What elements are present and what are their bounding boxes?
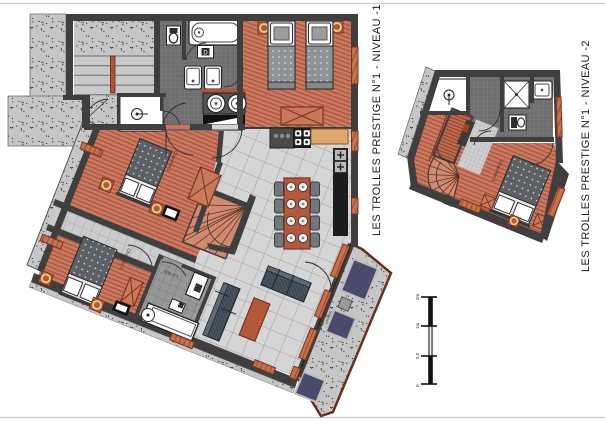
svg-text:D: D (203, 51, 208, 57)
svg-text:2m: 2m (415, 293, 420, 300)
svg-text:1m: 1m (415, 322, 420, 329)
svg-text:LES TROLLES PRESTIGE N°1 - NIV: LES TROLLES PRESTIGE N°1 - NIVEAU -1 (371, 4, 383, 236)
svg-text:LES TROLLES PRESTIGE N°1 - NIV: LES TROLLES PRESTIGE N°1 - NIVEAU -2 (580, 40, 592, 272)
svg-text:0,5: 0,5 (415, 352, 420, 359)
